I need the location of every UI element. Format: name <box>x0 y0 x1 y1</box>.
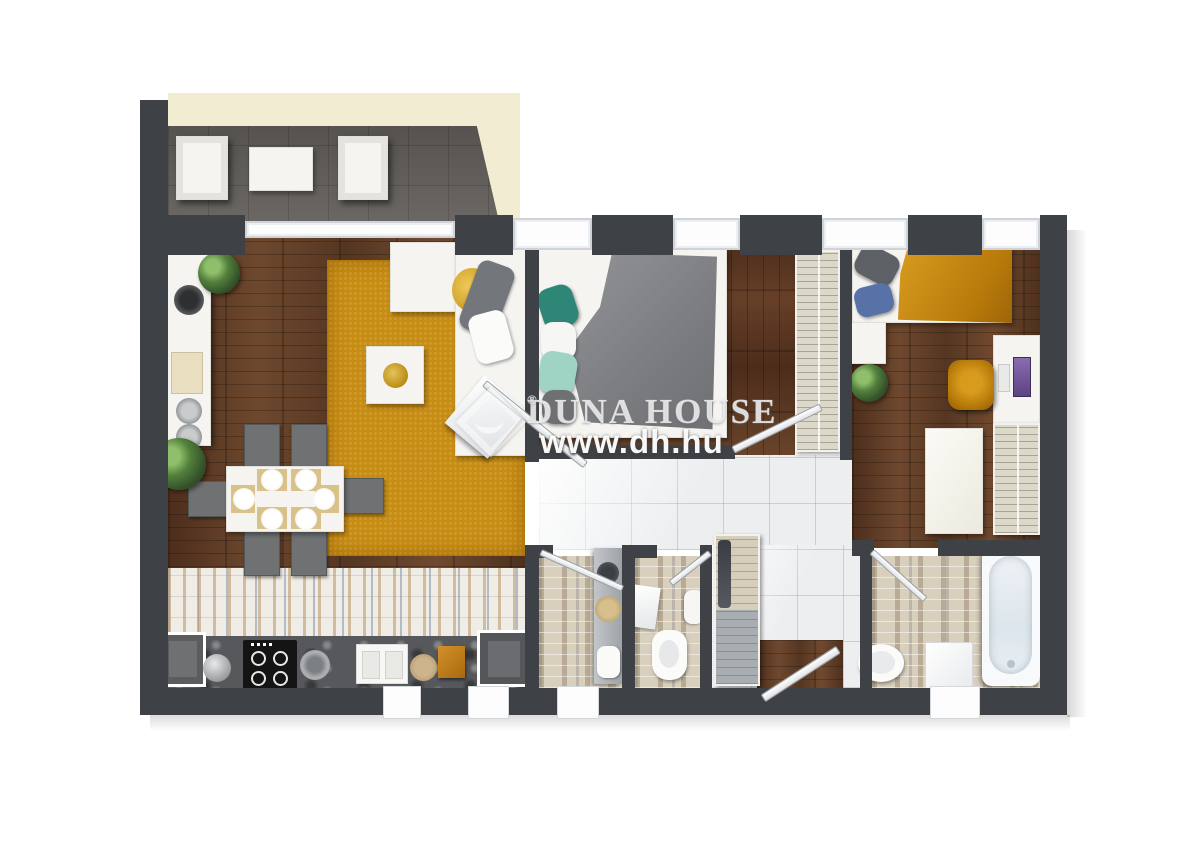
table-right-bedroom <box>925 428 983 534</box>
coat-closet <box>714 534 760 686</box>
window-3 <box>822 218 908 250</box>
plate <box>295 469 317 491</box>
window-bay-3 <box>557 686 599 719</box>
wall-top-living-corner <box>140 215 245 255</box>
bathtub <box>982 548 1040 686</box>
dining-chair-left <box>188 481 228 517</box>
dining-chair-bottom-2 <box>291 528 327 576</box>
wall-left <box>140 100 168 715</box>
plant-top <box>198 252 240 294</box>
wall-wc-top <box>635 545 657 558</box>
balcony-armchair-left <box>176 136 228 200</box>
kitchen-bowl <box>410 654 437 681</box>
window-2 <box>673 218 740 250</box>
wall-top-seg-d <box>740 215 822 255</box>
balcony-armchair-right <box>338 136 388 200</box>
wall-bath-wc-divider <box>622 545 635 688</box>
wardrobe-right-bedroom <box>993 423 1040 535</box>
kitchen-sink <box>356 644 408 684</box>
wall-living-bath-lower <box>525 545 539 688</box>
plate <box>313 488 335 510</box>
vanity-basin-beige <box>595 596 621 622</box>
counter-bowl <box>174 285 204 315</box>
desk-chair-mustard <box>948 360 994 410</box>
window-bay-1 <box>383 686 421 719</box>
wall-bedroom-right-bottom-r <box>938 540 1040 556</box>
wall-wardrobe-right <box>840 228 852 460</box>
dining-chair-right <box>342 478 384 514</box>
kitchen-mosaic-floor <box>168 568 525 638</box>
wc-toilet <box>652 630 687 680</box>
window-bay-4 <box>930 686 980 719</box>
cutting-board <box>171 352 203 394</box>
dining-table <box>226 466 344 532</box>
coffee-table-bowl <box>383 363 408 388</box>
dining-chair-bottom-1 <box>244 528 280 576</box>
wall-hall-bathroom-right <box>860 545 872 688</box>
plate <box>261 508 283 530</box>
desk-monitor <box>1013 357 1031 397</box>
sink-pot <box>300 650 330 680</box>
stove <box>243 640 297 690</box>
dining-chair-top-2 <box>291 424 327 472</box>
watermark-url: www.dh.hu <box>540 423 724 461</box>
plate <box>261 469 283 491</box>
wall-bottom <box>140 688 1067 715</box>
plant-right-bedroom <box>850 364 888 402</box>
dining-chair-top-1 <box>244 424 280 472</box>
vanity-sink-white <box>597 646 620 678</box>
window-4 <box>982 218 1040 250</box>
kettle <box>203 654 231 682</box>
kitchen-box-orange <box>438 646 465 678</box>
washing-machine <box>925 642 973 690</box>
hall-floor <box>539 455 852 550</box>
wall-top-seg-b <box>455 215 513 255</box>
plate <box>233 488 255 510</box>
nightstand-right-bedroom <box>848 322 886 364</box>
wall-top-seg-c <box>592 215 673 255</box>
entrance-threshold-wood <box>757 640 843 690</box>
counter-plate-1 <box>176 398 202 424</box>
window-1 <box>513 218 592 250</box>
desk-keyboard <box>998 364 1010 392</box>
floor-plan: DUNA HOUSE® www.dh.hu <box>0 0 1200 847</box>
hanging-coats <box>718 540 731 608</box>
balcony-coffee-table <box>249 147 313 191</box>
plate <box>295 508 317 530</box>
wall-top-seg-e <box>908 215 982 255</box>
wardrobe-middle-bedroom <box>795 250 840 452</box>
plan-shadow-right <box>1067 230 1087 717</box>
balcony-slider-window <box>245 221 455 238</box>
wall-wc-hall <box>700 545 712 688</box>
wall-right <box>1040 215 1067 715</box>
registered-mark: ® <box>527 392 539 408</box>
window-bay-2 <box>468 686 509 719</box>
kitchen-cabinet-right <box>477 630 530 687</box>
